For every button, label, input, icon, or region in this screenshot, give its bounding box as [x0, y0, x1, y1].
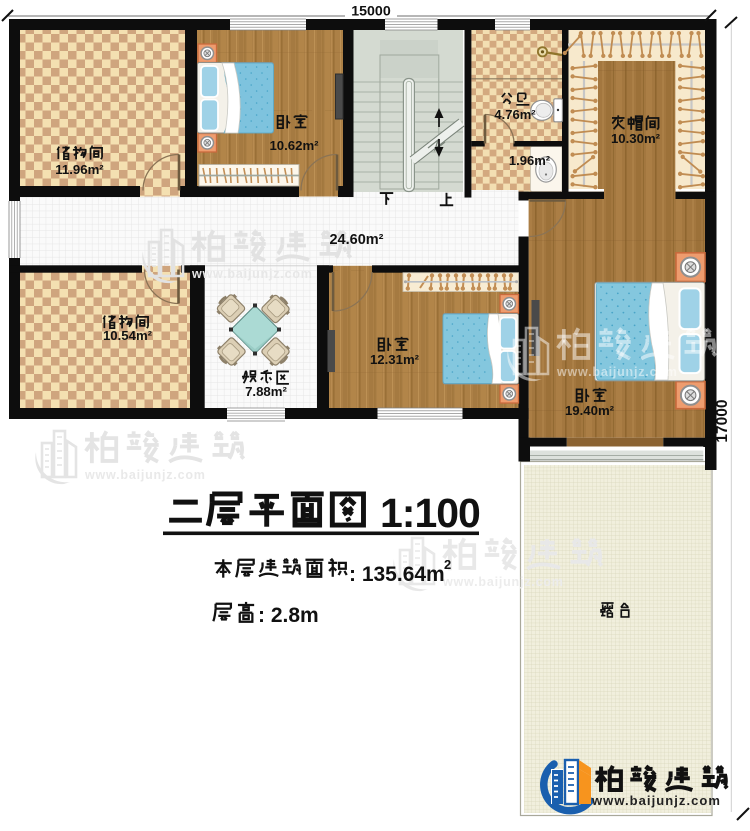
- svg-text:4.76m²: 4.76m²: [494, 107, 536, 122]
- svg-text:: 135.64m: : 135.64m: [349, 563, 445, 586]
- svg-text:: 2.8m: : 2.8m: [258, 604, 319, 627]
- svg-text:www.baijunjz.com: www.baijunjz.com: [84, 468, 206, 482]
- svg-text:19.40m²: 19.40m²: [565, 403, 615, 418]
- svg-text:12.31m²: 12.31m²: [370, 352, 420, 367]
- svg-text:10.30m²: 10.30m²: [611, 131, 661, 146]
- svg-text:2: 2: [444, 557, 451, 572]
- svg-text:1.96m²: 1.96m²: [509, 153, 551, 168]
- svg-text:11.96m²: 11.96m²: [55, 162, 104, 177]
- svg-text:10.62m²: 10.62m²: [269, 138, 319, 153]
- svg-text:15000: 15000: [351, 4, 391, 20]
- svg-text:www.baijunjz.com: www.baijunjz.com: [591, 793, 721, 808]
- svg-text:24.60m²: 24.60m²: [329, 232, 383, 248]
- svg-text:7.88m²: 7.88m²: [245, 384, 287, 399]
- svg-text:1:100: 1:100: [380, 490, 480, 536]
- svg-text:www.baijunjz.com: www.baijunjz.com: [556, 365, 678, 379]
- svg-text:10.54m²: 10.54m²: [103, 328, 153, 343]
- svg-text:www.baijunjz.com: www.baijunjz.com: [191, 267, 313, 281]
- svg-text:17000: 17000: [714, 399, 731, 442]
- svg-text:www.baijunjz.com: www.baijunjz.com: [442, 575, 564, 589]
